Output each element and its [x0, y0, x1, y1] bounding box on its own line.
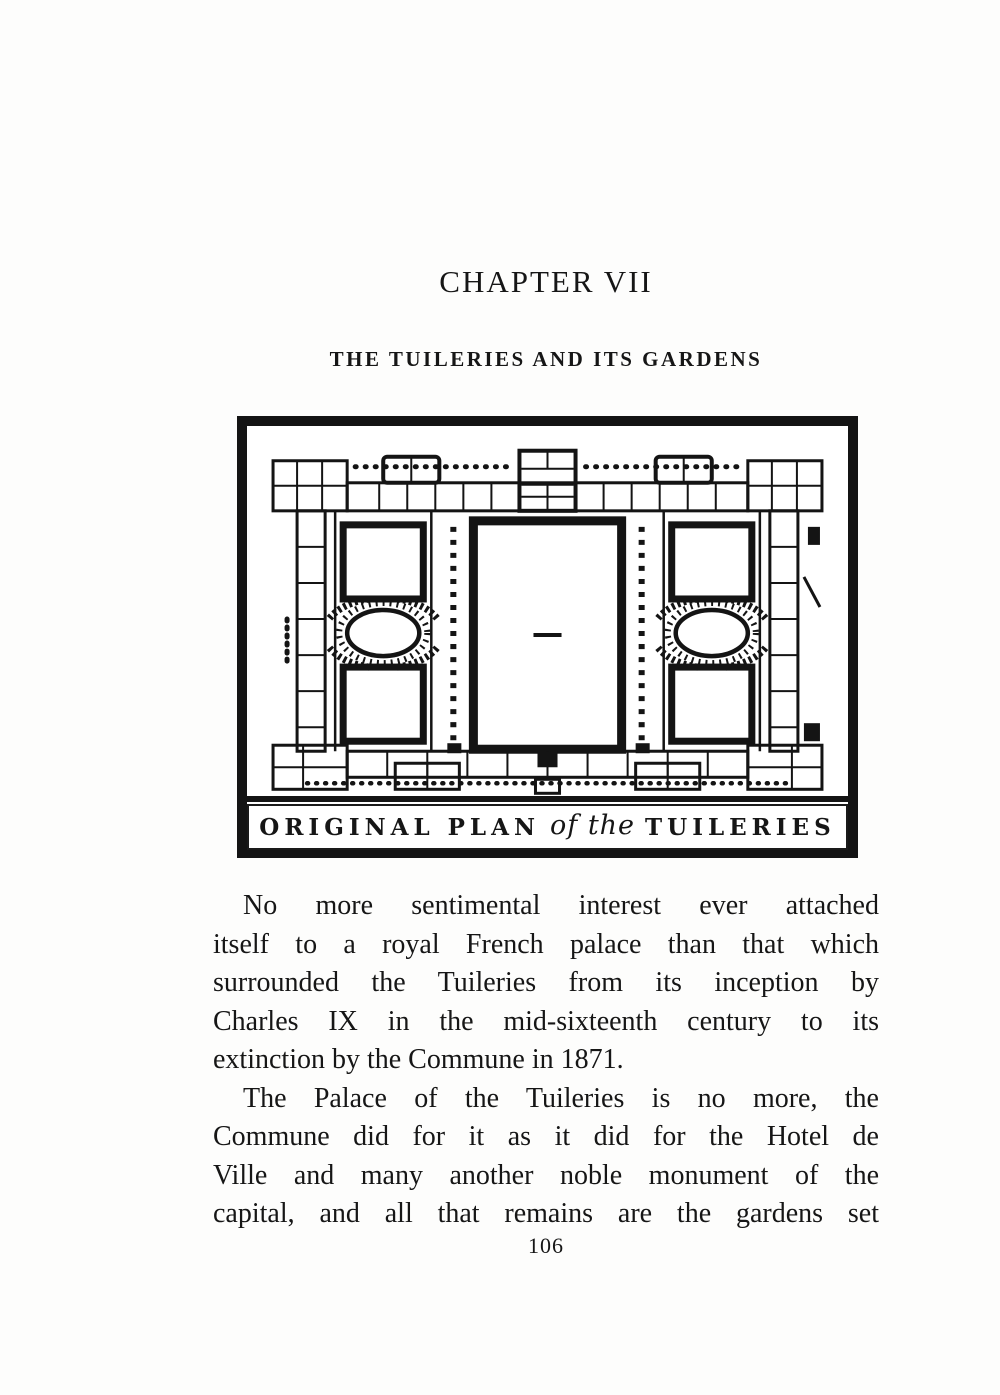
caption-text-right: TUILERIES [645, 814, 836, 841]
text-line: Charles IX in the mid-sixteenth century … [213, 1003, 879, 1042]
paragraph-2: The Palace of the Tuileries is no more, … [213, 1080, 879, 1234]
caption-text-script: of the [550, 810, 635, 841]
text-line: surrounded the Tuileries from its incept… [213, 964, 879, 1003]
caption-text-left: ORIGINAL PLAN [259, 814, 540, 841]
book-page: CHAPTER VII THE TUILERIES AND ITS GARDEN… [0, 0, 1000, 1395]
text-line: Ville and many another noble monument of… [213, 1157, 879, 1196]
chapter-heading: CHAPTER VII [213, 264, 879, 300]
body-text: No more sentimental interest ever attach… [213, 887, 879, 1234]
paragraph-1: No more sentimental interest ever attach… [213, 887, 879, 1080]
tuileries-plan-drawing [247, 426, 848, 796]
text-line: extinction by the Commune in 1871. [213, 1041, 879, 1080]
text-line: The Palace of the Tuileries is no more, … [213, 1080, 879, 1119]
figure-caption: ORIGINAL PLAN of the TUILERIES [247, 804, 848, 850]
figure-caption-separator [247, 796, 848, 802]
tuileries-plan-figure: ORIGINAL PLAN of the TUILERIES [237, 416, 858, 858]
page-number: 106 [213, 1233, 879, 1259]
chapter-subtitle: THE TUILERIES AND ITS GARDENS [213, 347, 879, 372]
text-line: capital, and all that remains are the ga… [213, 1195, 879, 1234]
text-line: Commune did for it as it did for the Hot… [213, 1118, 879, 1157]
text-line: itself to a royal French palace than tha… [213, 926, 879, 965]
text-line: No more sentimental interest ever attach… [213, 887, 879, 926]
